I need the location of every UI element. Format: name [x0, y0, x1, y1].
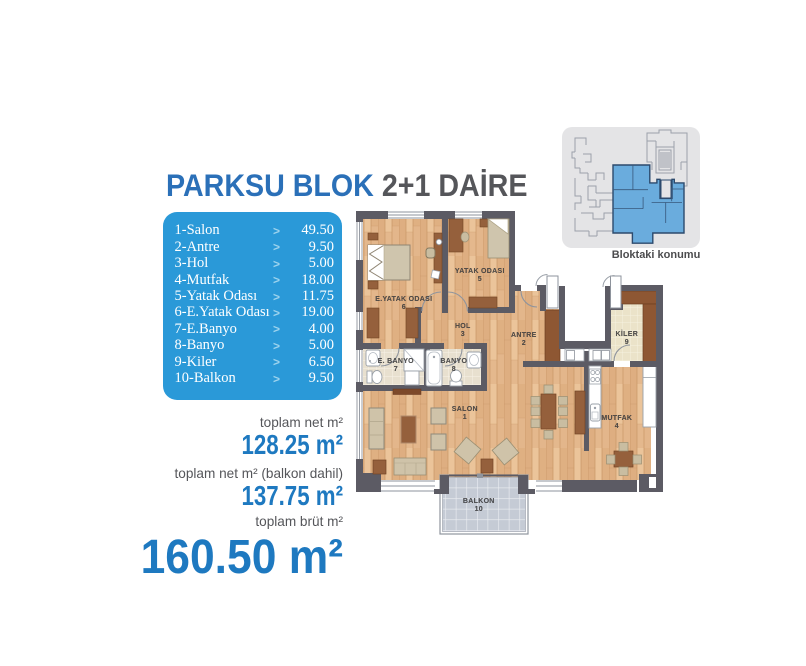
svg-text:MUTFAK: MUTFAK: [601, 415, 632, 422]
svg-text:10: 10: [475, 506, 483, 513]
svg-text:HOL: HOL: [455, 323, 471, 330]
svg-text:5: 5: [478, 276, 482, 283]
svg-text:YATAK ODASI: YATAK ODASI: [455, 268, 505, 275]
svg-text:E. BANYO: E. BANYO: [378, 358, 414, 365]
svg-text:9: 9: [625, 339, 629, 346]
svg-text:2: 2: [522, 340, 526, 347]
svg-text:E.YATAK ODASI: E.YATAK ODASI: [375, 296, 432, 303]
svg-text:8: 8: [452, 366, 456, 373]
svg-text:4: 4: [615, 423, 619, 430]
svg-text:ANTRE: ANTRE: [511, 332, 537, 339]
svg-text:KİLER: KİLER: [616, 330, 639, 338]
svg-text:BALKON: BALKON: [463, 498, 495, 505]
svg-text:3: 3: [461, 331, 465, 338]
svg-text:7: 7: [394, 366, 398, 373]
svg-text:1: 1: [463, 414, 467, 421]
svg-text:BANYO: BANYO: [440, 358, 467, 365]
svg-text:6: 6: [402, 304, 406, 311]
svg-text:SALON: SALON: [452, 406, 478, 413]
